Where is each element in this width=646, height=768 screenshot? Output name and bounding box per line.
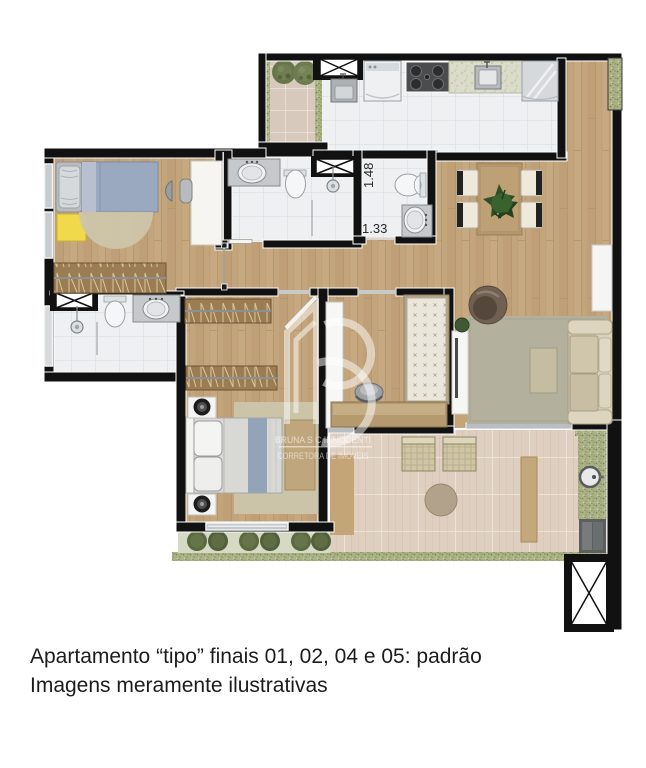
- svg-text:BRUNA S C INNOCENTI: BRUNA S C INNOCENTI: [275, 435, 371, 446]
- svg-text:CORRETORA DE IMOVEIS: CORRETORA DE IMOVEIS: [278, 451, 369, 461]
- svg-text:1.33: 1.33: [362, 221, 387, 236]
- svg-text:1.48: 1.48: [361, 163, 376, 188]
